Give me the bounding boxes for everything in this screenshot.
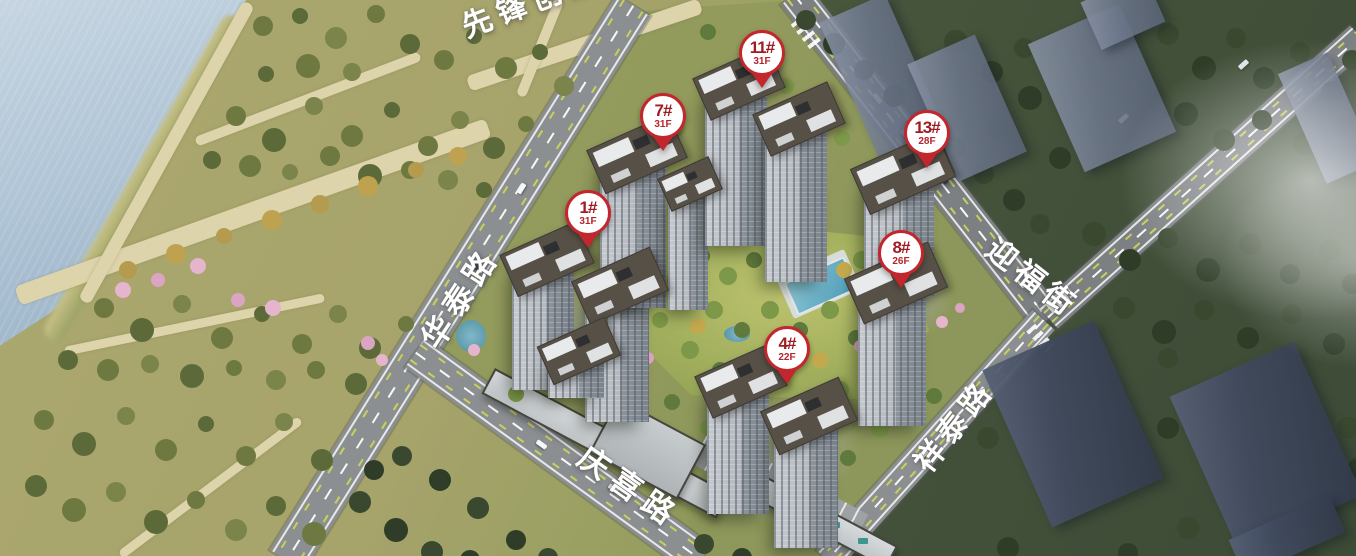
blossom-tree-cluster [0, 0, 16, 16]
pin-floor-count: 31F [579, 217, 596, 227]
pin-floor-count: 22F [778, 353, 795, 363]
pin-floor-count: 26F [892, 257, 909, 267]
pin-floor-count: 31F [654, 120, 671, 130]
building-pin-1[interactable]: 1# 31F [564, 190, 612, 248]
store-awning-3 [858, 538, 868, 544]
pin-building-number: 13# [914, 119, 939, 136]
pin-building-number: 4# [779, 335, 796, 352]
park-path-lower [64, 293, 325, 356]
pin-circle: 7# 31F [640, 93, 686, 139]
pin-circle: 8# 26F [878, 230, 924, 276]
pin-floor-count: 31F [753, 57, 770, 67]
courtyard-pond-1 [724, 326, 750, 342]
building-pin-13[interactable]: 13# 28F [903, 110, 951, 168]
pin-building-number: 8# [893, 239, 910, 256]
pin-building-number: 11# [750, 39, 774, 56]
building-pin-11[interactable]: 11# 31F [738, 30, 786, 88]
pin-circle: 13# 28F [904, 110, 950, 156]
building-pin-7[interactable]: 7# 31F [639, 93, 687, 151]
park-path-upper [194, 51, 422, 146]
pin-circle: 1# 31F [565, 190, 611, 236]
pin-circle: 4# 22F [764, 326, 810, 372]
pin-circle: 11# 31F [739, 30, 785, 76]
pin-floor-count: 28F [918, 137, 935, 147]
park-path-bottom [118, 416, 303, 556]
aerial-masterplan-view: 先锋创意 华泰路 迎福街 祥泰路 庆喜路 11# 31F 7# 31F 13# … [0, 0, 1356, 556]
pin-building-number: 7# [655, 102, 672, 119]
building-pin-4[interactable]: 4# 22F [763, 326, 811, 384]
pin-building-number: 1# [580, 199, 597, 216]
building-pin-8[interactable]: 8# 26F [877, 230, 925, 288]
